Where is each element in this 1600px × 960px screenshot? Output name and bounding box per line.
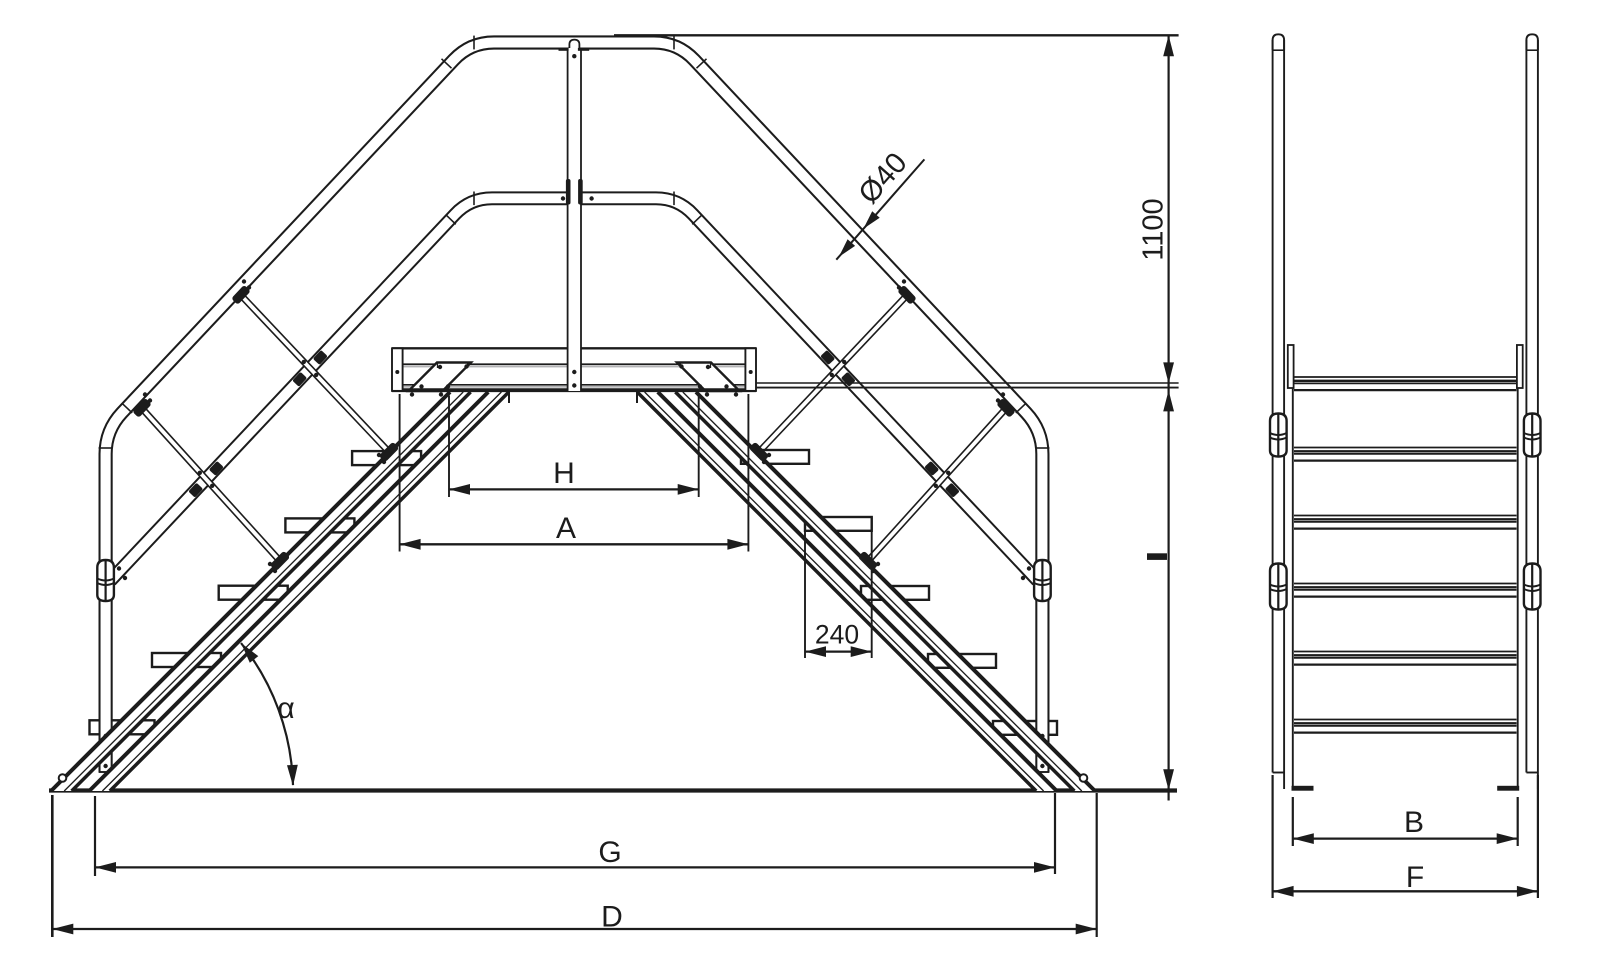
svg-text:α: α xyxy=(277,692,294,725)
svg-text:D: D xyxy=(601,901,623,934)
svg-text:240: 240 xyxy=(815,620,859,650)
svg-text:1100: 1100 xyxy=(1138,198,1170,260)
svg-text:B: B xyxy=(1404,806,1424,839)
svg-text:A: A xyxy=(556,512,576,545)
svg-text:H: H xyxy=(553,457,575,490)
svg-text:F: F xyxy=(1406,861,1424,894)
svg-text:G: G xyxy=(598,836,621,869)
